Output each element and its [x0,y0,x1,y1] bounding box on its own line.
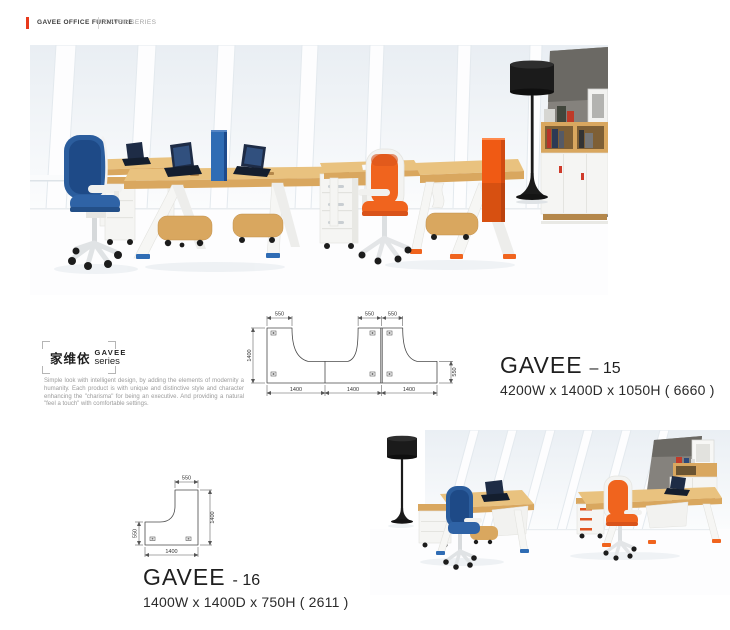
dimension-lines [135,480,212,557]
logo-latin-name: GAVEE [95,349,127,357]
desk-foot-accent-orange [450,254,463,259]
product-name: GAVEE [143,564,226,590]
desk-foot-accent-blue [136,254,150,259]
divider-screen-blue [211,130,227,181]
modesty-panel [646,502,688,528]
dim-label: 550 [182,476,191,482]
product-title: GAVEE- 16 [143,564,349,591]
product-model: - 16 [233,572,261,589]
desk-foot-accent-blue [436,551,445,555]
product-title: GAVEE– 15 [500,352,715,379]
bracket-icon [42,341,50,349]
desk-foot-accent-orange [410,249,422,254]
picture-frame [588,89,608,123]
dim-label: 1400 [347,387,359,393]
desk-foot-accent-blue [266,253,280,258]
plan-drawing-gavee-16: 550 1400 550 1400 [130,470,220,562]
desk-foot-accent-orange [712,539,721,543]
logo-chinese-name: 家维依 [50,348,91,367]
product-model: – 15 [590,360,621,377]
plan-drawing-gavee-15: 550 550 550 1400 550 1400 1400 1400 [245,302,465,402]
grommet-symbols [271,331,392,376]
picture-frame [692,440,714,466]
dim-label: 550 [365,312,374,318]
bracket-icon [42,366,50,374]
product-label-gavee-16: GAVEE- 16 1400W x 1400D x 750H ( 2611 ) [143,564,349,610]
storage-cabinet [541,106,608,224]
dim-label: 1400 [290,387,302,393]
desk-foot-accent-orange [503,254,516,259]
dim-label: 1400 [165,549,177,555]
grommet-symbols [150,537,191,541]
product-name: GAVEE [500,352,583,378]
mobile-pedestal-white [320,174,358,249]
product-label-gavee-15: GAVEE– 15 4200W x 1400D x 1050H ( 6660 ) [500,352,715,398]
catalog-page: GAVEE OFFICE FURNITURE GAVEE SERIES [0,0,730,630]
series-description: Simple look with intelligent design, by … [44,378,244,409]
desk-foot-accent-orange [648,540,656,544]
dim-label: 550 [275,312,284,318]
divider-screen-orange [482,138,505,222]
dim-label: 1400 [403,387,415,393]
dim-label: 1400 [210,511,216,523]
dim-label: 550 [133,529,139,538]
series-label: GAVEE SERIES [104,19,156,26]
dim-label: 1400 [247,349,253,361]
photo-workstation-gavee-16 [370,430,730,595]
dim-label: 550 [388,312,397,318]
brand-logo: 家维依 GAVEE series [46,344,112,371]
product-dimensions: 4200W x 1400D x 1050H ( 6660 ) [500,382,715,398]
dim-label: 550 [452,367,458,376]
product-dimensions: 1400W x 1400D x 750H ( 2611 ) [143,594,349,610]
desk-foot-accent-orange [602,543,611,547]
bracket-icon [108,366,116,374]
desk-foot-accent-blue [520,549,529,553]
bracket-icon [108,341,116,349]
header-accent-bar [26,17,29,29]
photo-workstation-gavee-15 [30,45,608,295]
desk-outline [267,328,437,383]
header-divider [98,17,99,29]
